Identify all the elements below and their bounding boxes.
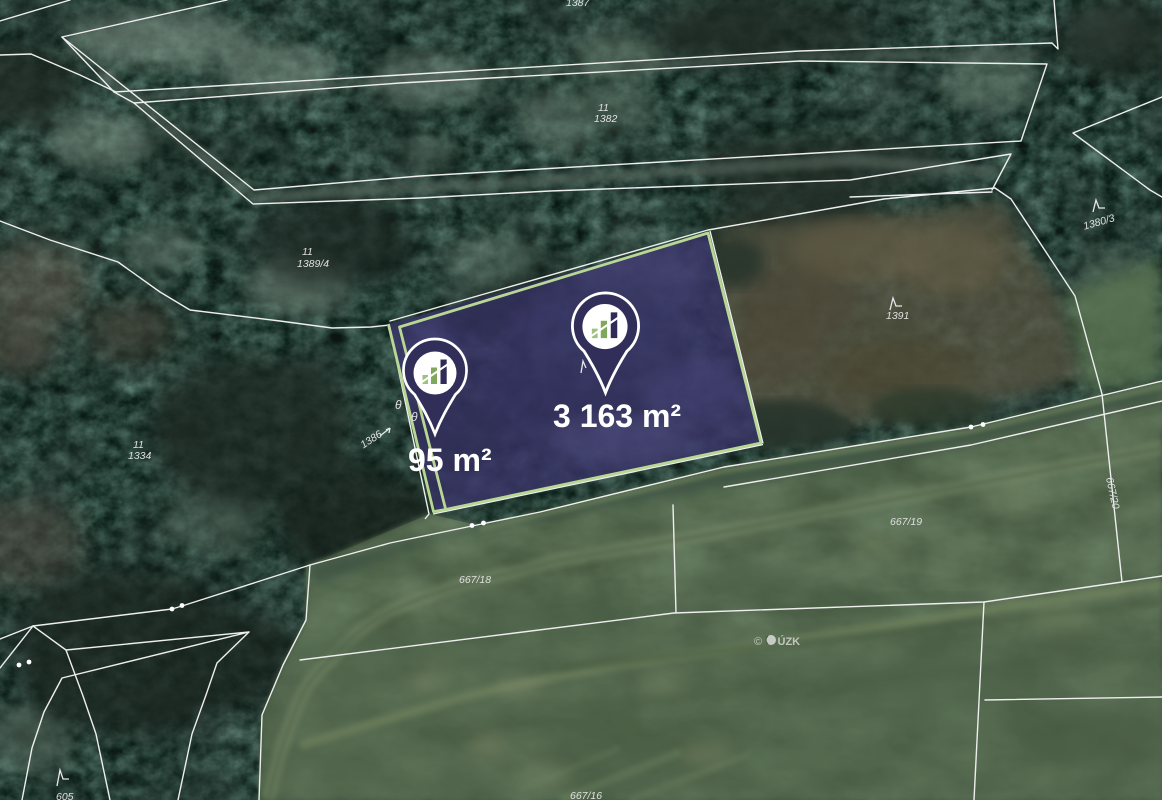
svg-text:1334: 1334	[128, 450, 152, 462]
svg-text:11: 11	[302, 246, 313, 258]
svg-text:1382: 1382	[594, 113, 618, 125]
svg-text:605: 605	[56, 791, 74, 800]
svg-text:95 m²: 95 m²	[408, 442, 492, 478]
svg-text:667/18: 667/18	[459, 574, 491, 586]
svg-text:1387: 1387	[566, 0, 591, 9]
svg-text:667/19: 667/19	[890, 516, 922, 528]
svg-text:ÚZK: ÚZK	[778, 635, 801, 648]
svg-text:1391: 1391	[886, 310, 909, 322]
svg-text:θ: θ	[411, 410, 418, 424]
svg-text:©: ©	[754, 636, 762, 648]
svg-text:667/16: 667/16	[570, 790, 602, 800]
svg-text:1389/4: 1389/4	[297, 258, 329, 270]
svg-text:3 163 m²: 3 163 m²	[553, 398, 681, 434]
svg-text:θ: θ	[395, 398, 402, 412]
